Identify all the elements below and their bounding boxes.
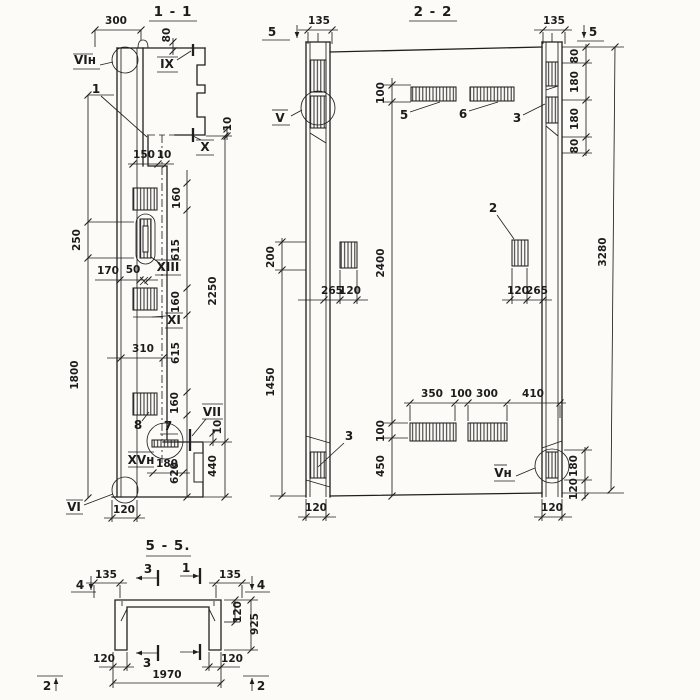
- label-2: 2: [489, 201, 497, 215]
- dim-310: 310: [132, 343, 154, 355]
- dim-135-left: 135: [308, 15, 330, 27]
- cut-label-5-right: 5: [589, 25, 597, 39]
- dim-160a: 160: [171, 187, 183, 209]
- embed-plate: [133, 188, 157, 210]
- cut-label-5-left: 5: [268, 25, 276, 39]
- rebar-strip: [410, 423, 456, 441]
- label-1: 1: [92, 82, 100, 96]
- corner-plate: [152, 440, 178, 447]
- section-2-2: 2 - 2 5 5 135 135 V 100 5 6 3 80 180 180…: [262, 4, 624, 521]
- section-1-1: 1 - 1 300 80 VIн 1 IX 10 X 150 10 160 61…: [66, 4, 234, 522]
- section-title-5-5: 5 - 5.: [146, 538, 191, 554]
- detail-circle-VIn: [112, 47, 138, 73]
- dim-120-bottom-right: 120: [221, 653, 243, 665]
- label-VII: VII: [203, 405, 221, 419]
- label-XVn: XVн: [128, 453, 155, 467]
- dim-135-right: 135: [219, 569, 241, 581]
- dim-3280: 3280: [597, 237, 609, 266]
- dim-120-side: 120: [232, 601, 244, 623]
- cut-label-4-right: 4: [257, 578, 265, 592]
- embed-plate: [340, 242, 357, 268]
- embed-plate: [512, 240, 528, 266]
- section-5-5-geometry: [115, 600, 221, 650]
- dim-120-bottom-left: 120: [93, 653, 115, 665]
- top-tab: [138, 40, 148, 48]
- section-2-2-geometry: [301, 33, 569, 497]
- dim-120-left: 120: [339, 285, 361, 297]
- dim-180-right: 180: [568, 455, 580, 477]
- dim-410: 410: [522, 388, 544, 400]
- cut-label-4-left: 4: [76, 578, 84, 592]
- embed-plate: [310, 452, 326, 478]
- dim-350: 350: [421, 388, 443, 400]
- rebar-strip: [468, 423, 507, 441]
- label-XIII: XIII: [157, 260, 180, 274]
- cut-label-3-bottom: 3: [143, 656, 151, 670]
- dim-925: 925: [249, 613, 261, 635]
- cut-label-3-top: 3: [144, 562, 152, 576]
- dim-10-top: 10: [222, 117, 234, 132]
- label-7: 7: [164, 419, 172, 433]
- dim-2400: 2400: [375, 248, 387, 277]
- dim-135-right: 135: [543, 15, 565, 27]
- label-8: 8: [134, 418, 142, 432]
- cut-label-2-left: 2: [43, 679, 51, 693]
- dim-615b: 615: [170, 342, 182, 364]
- label-6: 6: [459, 107, 467, 121]
- dim-135-left: 135: [95, 569, 117, 581]
- dim-120-rightside: 120: [568, 478, 580, 500]
- dim-100-mid: 100: [450, 388, 472, 400]
- dim-615a: 615: [170, 239, 182, 261]
- label-5: 5: [400, 108, 408, 122]
- dim-80: 80: [161, 28, 173, 43]
- section-5-5-labels: 5 - 5. 4 4 135 135 3 1 3 120 925 120 120…: [43, 538, 265, 693]
- dim-300: 300: [105, 15, 127, 27]
- label-3-bottom: 3: [345, 429, 353, 443]
- label-VIn: VIн: [74, 53, 96, 67]
- embed-plate: [310, 60, 326, 92]
- embed-plate: [546, 97, 558, 123]
- dim-180a: 180: [569, 71, 581, 93]
- dim-10c: 10: [212, 420, 224, 435]
- dim-170: 170: [97, 265, 119, 277]
- label-X: X: [200, 140, 210, 154]
- engineering-drawing-page: 1 - 1 300 80 VIн 1 IX 10 X 150 10 160 61…: [0, 0, 700, 700]
- dim-300: 300: [476, 388, 498, 400]
- label-IX: IX: [160, 57, 174, 71]
- section-title-1-1: 1 - 1: [154, 4, 193, 20]
- cut-label-2-right: 2: [257, 679, 265, 693]
- dim-50: 50: [126, 264, 141, 276]
- dim-180b: 180: [569, 108, 581, 130]
- dim-1970: 1970: [152, 669, 181, 681]
- dim-250: 250: [71, 229, 83, 251]
- embed-plate: [133, 393, 157, 415]
- rebar-strip: [470, 87, 514, 101]
- section-5-5: 5 - 5. 4 4 135 135 3 1 3 120 925 120 120…: [37, 538, 270, 693]
- label-3-top: 3: [513, 111, 521, 125]
- dim-80a: 80: [569, 49, 581, 64]
- dim-120-below-right: 120: [541, 502, 563, 514]
- label-VI: VI: [67, 500, 81, 514]
- dim-80b: 80: [569, 139, 581, 154]
- dim-100-bottom: 100: [375, 420, 387, 442]
- dim-450: 450: [375, 455, 387, 477]
- section-title-2-2: 2 - 2: [414, 4, 453, 20]
- section-1-1-labels: 1 - 1 300 80 VIн 1 IX 10 X 150 10 160 61…: [66, 4, 234, 516]
- dim-160b: 160: [170, 291, 182, 313]
- dim-2250: 2250: [207, 276, 219, 305]
- drawing-canvas: 1 - 1 300 80 VIн 1 IX 10 X 150 10 160 61…: [0, 0, 700, 700]
- dim-1450: 1450: [265, 367, 277, 396]
- detail-circle-VI: [112, 477, 138, 503]
- embed-plate: [133, 288, 157, 310]
- dim-100-top: 100: [375, 82, 387, 104]
- label-Vn: Vн: [494, 466, 512, 480]
- embed-plate: [546, 62, 558, 86]
- dim-150: 150: [133, 149, 155, 161]
- dim-160c: 160: [169, 392, 181, 414]
- dim-10a: 10: [157, 149, 172, 161]
- dim-200: 200: [265, 246, 277, 268]
- dim-440: 440: [207, 455, 219, 477]
- embed-plate: [310, 96, 326, 128]
- dim-265-right: 265: [526, 285, 548, 297]
- edge-slot: [194, 453, 203, 482]
- dim-120-below-left: 120: [305, 502, 327, 514]
- embed-plate: [546, 452, 558, 478]
- dim-120: 120: [113, 504, 135, 516]
- dim-180: 180: [156, 458, 178, 470]
- dim-1800: 1800: [69, 360, 81, 389]
- cut-label-1-top: 1: [182, 561, 190, 575]
- label-XI: XI: [167, 313, 181, 327]
- label-V: V: [275, 111, 285, 125]
- rebar-strip: [411, 87, 456, 101]
